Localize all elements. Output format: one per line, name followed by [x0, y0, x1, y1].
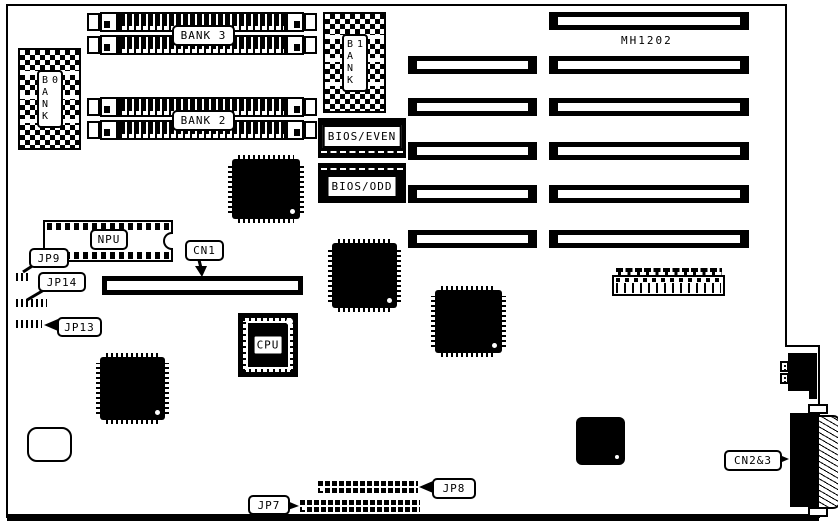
cn23-label: CN2&3 [724, 450, 782, 471]
isa-slot [549, 142, 749, 160]
cpu-label: CPU [253, 335, 284, 356]
isa-slot [549, 185, 749, 203]
simm-end [87, 13, 100, 31]
jp8-label: JP8 [432, 478, 476, 499]
isa-slot [549, 56, 749, 74]
bios-odd-label: BIOS/ODD [327, 175, 398, 198]
power-connector [612, 268, 725, 296]
bios-dash-line [321, 168, 403, 170]
qfp-chip [228, 155, 304, 223]
bank1-dip-block: BANK 1 [323, 12, 386, 113]
isa-slot [408, 98, 537, 116]
board-outline [0, 0, 838, 527]
isa-slot [549, 12, 749, 30]
cn23-shell [817, 415, 838, 509]
simm-end [304, 13, 317, 31]
pin1-dot [492, 343, 497, 348]
simm-end [304, 36, 317, 54]
bios-even-label: BIOS/EVEN [323, 125, 402, 148]
qfp-chip [96, 353, 169, 424]
jp7-header [300, 500, 420, 512]
simm-latch [286, 120, 304, 140]
board-model-text: MH1202 [621, 35, 673, 46]
jp13-jumper [16, 320, 42, 328]
power-hole-row [616, 283, 721, 293]
bios-dash-line [321, 151, 403, 153]
simm-end [304, 121, 317, 139]
jp13-label: JP13 [57, 317, 102, 337]
cn23-connector [790, 413, 820, 507]
pin1-dot [286, 318, 293, 325]
pin1-dot [155, 410, 160, 415]
simm-latch [286, 35, 304, 55]
keyboard-connector-step [809, 389, 817, 399]
simm-end [87, 121, 100, 139]
cn23-mount-tab [808, 507, 828, 517]
isa-slot [549, 230, 749, 248]
bios-even-chip: BIOS/EVEN [318, 118, 406, 158]
npu-notch [163, 232, 173, 250]
isa-slot [408, 230, 537, 248]
simm-end [87, 98, 100, 116]
power-contact-row [616, 278, 721, 282]
bank1-label: BANK 1 [342, 34, 368, 92]
motherboard-diagram: BANK 0 BANK 1 BANK 3 BANK 2 [0, 0, 838, 527]
cn23-mount-tab [808, 404, 828, 414]
simm-latch [100, 120, 118, 140]
keyboard-connector [788, 353, 817, 391]
simm-latch [286, 12, 304, 32]
qfp-chip [431, 286, 506, 357]
keyboard-tab [780, 361, 789, 372]
cpu-socket: CPU [238, 313, 298, 377]
qfp-chip [328, 239, 401, 312]
simm-latch [100, 97, 118, 117]
bank0-label: BANK 0 [37, 70, 63, 128]
bank3-label: BANK 3 [172, 25, 235, 46]
pin1-dot [387, 298, 392, 303]
simm-latch [100, 35, 118, 55]
isa-slot [408, 56, 537, 74]
pin1-dot [290, 209, 295, 214]
simm-latch [286, 97, 304, 117]
simm-end [87, 36, 100, 54]
bank2-label: BANK 2 [172, 110, 235, 131]
plcc-chip [576, 417, 625, 465]
isa-slot [408, 185, 537, 203]
jp8-header [318, 481, 418, 493]
component-outline [27, 427, 72, 462]
isa-slot [408, 142, 537, 160]
simm-latch [100, 12, 118, 32]
jp9-label: JP9 [29, 248, 69, 268]
bios-odd-chip: BIOS/ODD [318, 163, 406, 203]
jp14-jumper [16, 299, 47, 307]
isa-slot [549, 98, 749, 116]
simm-end [304, 98, 317, 116]
jp14-label: JP14 [38, 272, 86, 292]
npu-label: NPU [90, 229, 128, 250]
power-body [612, 275, 725, 296]
pin1-dot [615, 455, 619, 459]
cn1-slot [102, 276, 303, 295]
jp7-label: JP7 [248, 495, 290, 515]
jp9-jumper [16, 273, 29, 281]
cn1-label: CN1 [185, 240, 224, 261]
keyboard-tab [780, 373, 789, 384]
bank0-dip-block: BANK 0 [18, 48, 81, 150]
